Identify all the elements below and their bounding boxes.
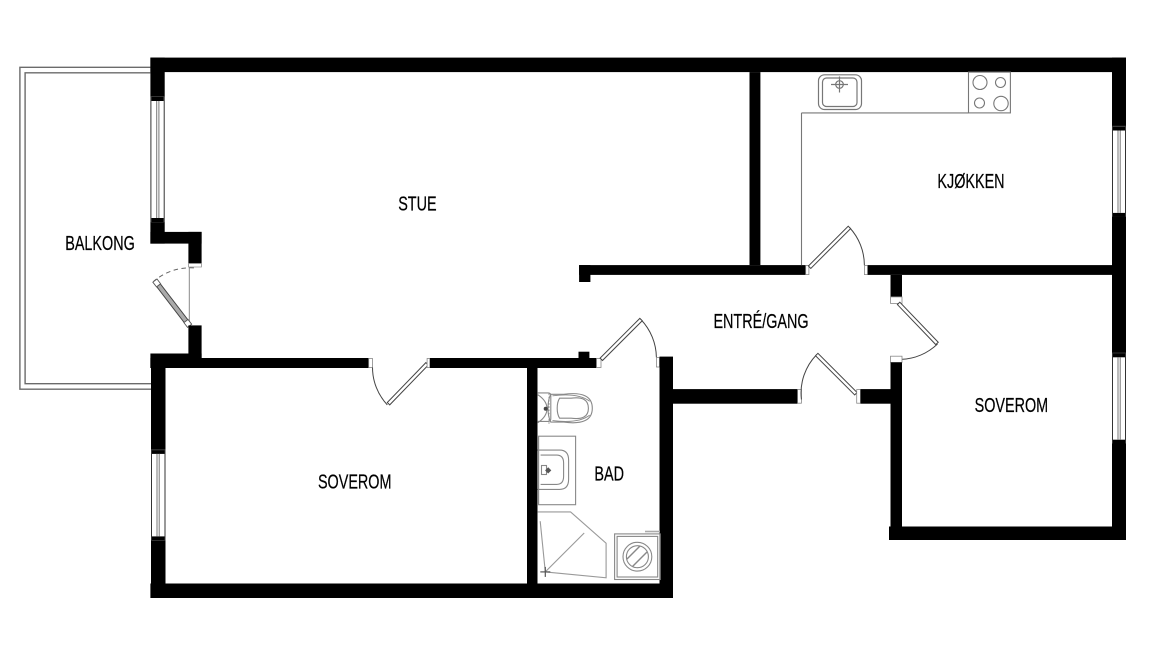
svg-text:BALKONG: BALKONG <box>65 232 135 255</box>
svg-text:ENTRÉ/GANG: ENTRÉ/GANG <box>713 310 808 333</box>
svg-text:BAD: BAD <box>594 462 624 485</box>
svg-text:SOVEROM: SOVEROM <box>975 393 1049 416</box>
svg-text:KJØKKEN: KJØKKEN <box>937 170 1004 193</box>
svg-text:STUE: STUE <box>398 192 436 215</box>
svg-text:SOVEROM: SOVEROM <box>318 470 392 493</box>
